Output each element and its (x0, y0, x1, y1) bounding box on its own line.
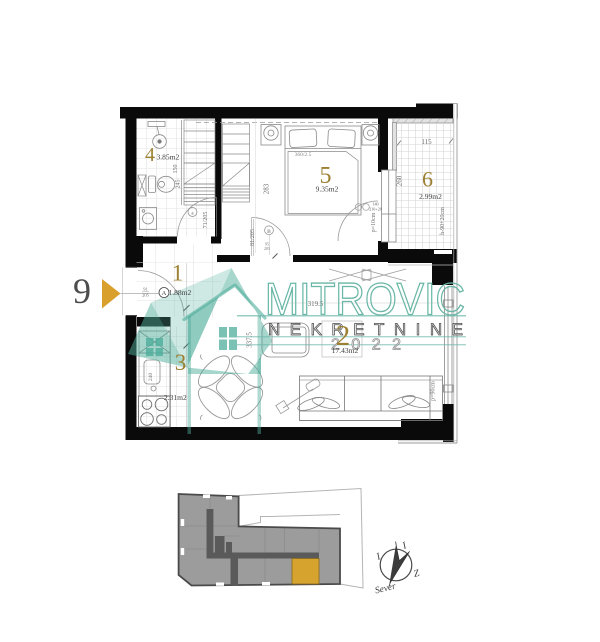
svg-text:B: B (267, 229, 271, 235)
svg-text:205: 205 (142, 293, 150, 298)
svg-text:360/2.5: 360/2.5 (295, 152, 312, 158)
svg-text:9.35m2: 9.35m2 (316, 185, 339, 194)
svg-text:a: a (191, 212, 194, 217)
svg-text:81/205: 81/205 (250, 229, 256, 246)
svg-text:337.5: 337.5 (246, 332, 254, 348)
svg-text:Z: Z (412, 568, 421, 580)
svg-text:1.88m2: 1.88m2 (169, 288, 192, 297)
svg-text:A: A (162, 290, 167, 297)
svg-text:240: 240 (148, 373, 154, 382)
svg-text:210+20: 210+20 (369, 207, 382, 212)
svg-text:h-90+20cm: h-90+20cm (440, 207, 446, 235)
svg-text:6: 6 (422, 167, 433, 192)
svg-text:319.5: 319.5 (308, 300, 324, 308)
svg-text:260: 260 (396, 175, 404, 186)
svg-text:205: 205 (264, 246, 270, 251)
svg-text:9: 9 (73, 271, 91, 311)
svg-text:p=90cm: p=90cm (431, 381, 437, 401)
svg-text:71/205: 71/205 (203, 212, 209, 229)
svg-text:2.99m2: 2.99m2 (419, 192, 442, 201)
svg-text:17.43m2: 17.43m2 (332, 346, 359, 355)
svg-text:3: 3 (175, 350, 187, 375)
svg-text:3.85m2: 3.85m2 (157, 153, 180, 162)
svg-text:4: 4 (145, 144, 155, 166)
svg-text:I: I (374, 551, 383, 563)
svg-text:p=10cm: p=10cm (371, 212, 377, 232)
svg-text:MITROVIC: MITROVIC (265, 274, 465, 325)
svg-text:115: 115 (421, 138, 432, 146)
svg-text:245: 245 (176, 180, 182, 189)
svg-text:1: 1 (172, 261, 184, 286)
svg-text:150: 150 (173, 165, 179, 174)
svg-text:283: 283 (263, 183, 271, 194)
svg-text:Sever: Sever (374, 582, 397, 597)
svg-text:91: 91 (143, 287, 148, 292)
svg-text:2.31m2: 2.31m2 (164, 393, 187, 402)
